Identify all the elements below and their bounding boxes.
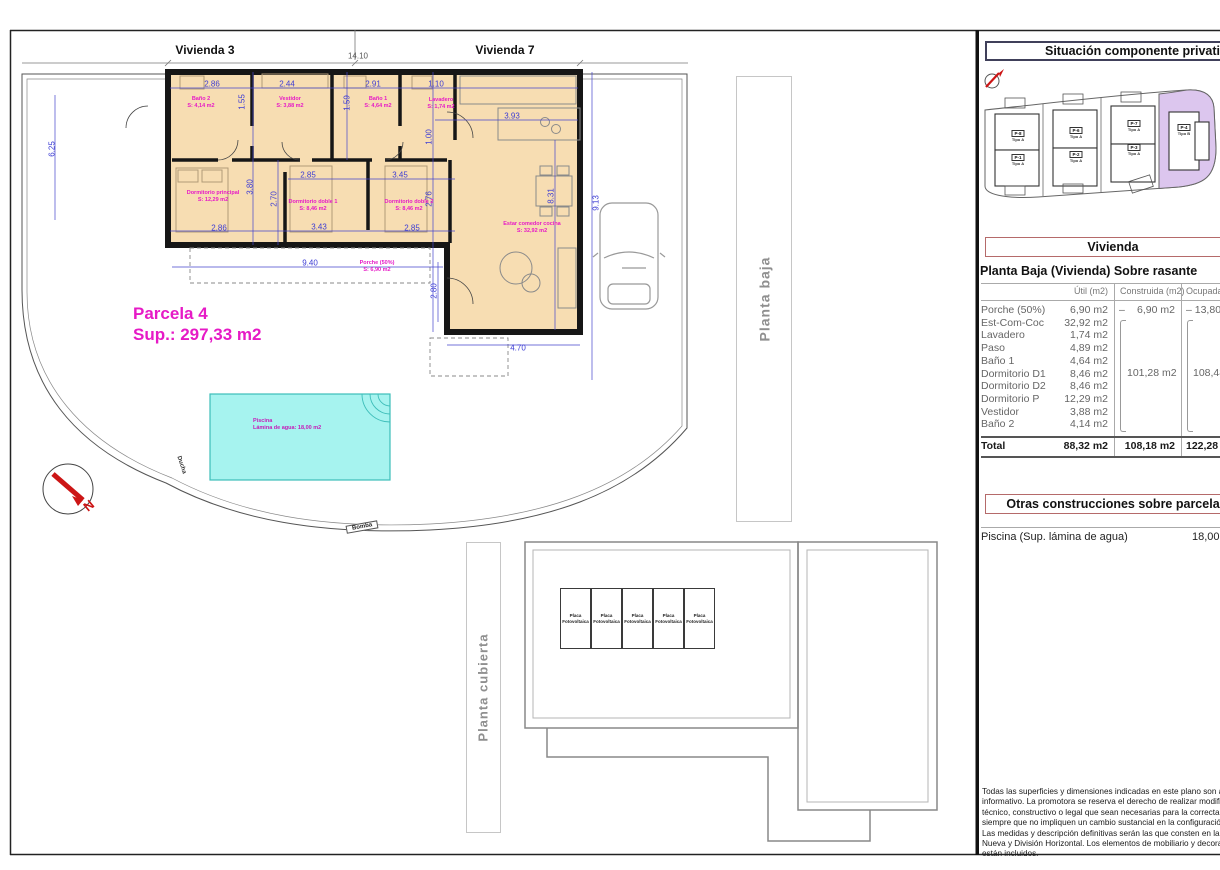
dim-label: 1.00 bbox=[425, 129, 434, 145]
col-ocupada: Ocupada bbox=[1186, 286, 1220, 296]
row-util: 4,14 m2 bbox=[1028, 418, 1108, 430]
dim-label: 1.59 bbox=[343, 95, 352, 111]
room-label: Baño 1S: 4,64 m2 bbox=[364, 96, 391, 110]
row-label: Baño 1 bbox=[981, 355, 1014, 367]
dim-label: 14.10 bbox=[348, 52, 368, 61]
otras-header: Otras construcciones sobre parcela bbox=[985, 494, 1220, 514]
row-util: 4,64 m2 bbox=[1028, 355, 1108, 367]
vivienda-header: Vivienda bbox=[985, 237, 1220, 257]
room-label: Porche (50%)S: 6,90 m2 bbox=[360, 260, 395, 274]
vivienda-3-title: Vivienda 3 bbox=[175, 43, 234, 57]
panel-divider bbox=[976, 30, 980, 855]
dim-label: 2.85 bbox=[404, 224, 420, 233]
pool-label: PiscinaLámina de agua: 18,00 m2 bbox=[253, 418, 321, 432]
dim-label: 2.85 bbox=[300, 171, 316, 180]
solar-panel: PlacaFotovoltaica bbox=[653, 588, 684, 649]
piscina-row-label: Piscina (Sup. lámina de agua) bbox=[981, 531, 1128, 543]
dim-label: 2.80 bbox=[430, 283, 439, 299]
row-label: Baño 2 bbox=[981, 418, 1014, 430]
dim-label: 3.80 bbox=[246, 179, 255, 195]
roof-plan bbox=[525, 542, 937, 841]
dim-label: 3.43 bbox=[311, 223, 327, 232]
disclaimer: Todas las superficies y dimensiones indi… bbox=[982, 787, 1220, 860]
room-label: Dormitorio doble 1S: 8,46 m2 bbox=[289, 199, 338, 213]
room-label: Dormitorio principalS: 12,29 m2 bbox=[187, 190, 240, 204]
room-label: Estar comedor cocinaS: 32,92 m2 bbox=[503, 221, 560, 235]
plot-label-highlighted: P-4Tipo B bbox=[1177, 124, 1190, 136]
group-ocupada: 108,48 bbox=[1193, 367, 1220, 379]
row-util: 8,46 m2 bbox=[1028, 380, 1108, 392]
room-label: LavaderoS: 1,74 m2 bbox=[427, 97, 454, 111]
row-util: 12,29 m2 bbox=[1028, 393, 1108, 405]
solar-panel-array: PlacaFotovoltaica PlacaFotovoltaica Plac… bbox=[560, 588, 715, 649]
vivienda-7-title: Vivienda 7 bbox=[475, 43, 534, 57]
row-label: Paso bbox=[981, 342, 1005, 354]
dim-label: 2.70 bbox=[270, 191, 279, 207]
room-label: Baño 2S: 4,14 m2 bbox=[187, 96, 214, 110]
row-util: 3,88 m2 bbox=[1028, 406, 1108, 418]
room-label: VestidorS: 3,88 m2 bbox=[276, 96, 303, 110]
plot-label: P-1Tipo A bbox=[1011, 154, 1024, 166]
dim-label: 3.45 bbox=[392, 171, 408, 180]
dim-label: 1.55 bbox=[238, 94, 247, 110]
car bbox=[593, 203, 665, 309]
porche-construida: 6,90 m2 bbox=[1127, 304, 1175, 316]
dim-label: 3.93 bbox=[504, 112, 520, 121]
solar-panel: PlacaFotovoltaica bbox=[684, 588, 715, 649]
row-util: 32,92 m2 bbox=[1028, 317, 1108, 329]
plot-label: P-7Tipo A bbox=[1127, 120, 1140, 132]
solar-panel: PlacaFotovoltaica bbox=[622, 588, 653, 649]
top-dim-line bbox=[22, 60, 688, 66]
pool bbox=[210, 394, 390, 480]
dim-label: 4.70 bbox=[510, 344, 526, 353]
porche-ocupada: – 13,80 bbox=[1186, 304, 1220, 316]
piscina-row-value: 18,00 bbox=[1192, 531, 1220, 543]
total-construida: 108,18 m2 bbox=[1117, 440, 1175, 452]
dim-label: 9.40 bbox=[302, 259, 318, 268]
porche-construida-dash: – bbox=[1119, 304, 1125, 316]
dim-label: 9.13 bbox=[592, 195, 601, 211]
solar-panel: PlacaFotovoltaica bbox=[591, 588, 622, 649]
plot-label: P-8Tipo A bbox=[1011, 130, 1024, 142]
row-util: 6,90 m2 bbox=[1028, 304, 1108, 316]
plot-label: P-2Tipo A bbox=[1069, 151, 1082, 163]
dim-label: 8.31 bbox=[547, 188, 556, 204]
plot-label: P-6Tipo A bbox=[1069, 127, 1082, 139]
group-construida: 101,28 m2 bbox=[1127, 367, 1175, 379]
plot-label: P-3Tipo A bbox=[1127, 144, 1140, 156]
row-label: Lavadero bbox=[981, 329, 1025, 341]
dim-label: 2.91 bbox=[365, 80, 381, 89]
col-util: Útil (m2) bbox=[1021, 286, 1108, 296]
situacion-header: Situación componente privativo bbox=[985, 41, 1220, 61]
row-util: 8,46 m2 bbox=[1028, 368, 1108, 380]
planta-baja-strip: Planta baja bbox=[736, 76, 792, 522]
construida-bracket bbox=[1120, 320, 1126, 432]
room-label: Dormitorio doble 2S: 8,46 m2 bbox=[385, 199, 434, 213]
dim-label: 6.25 bbox=[48, 141, 57, 157]
areas-table: Útil (m2) Construida (m2) Ocupada Porche… bbox=[981, 283, 1220, 463]
dim-label: 2.86 bbox=[211, 224, 227, 233]
site-plan bbox=[985, 90, 1216, 198]
col-construida: Construida (m2) bbox=[1120, 286, 1185, 296]
pen-icon bbox=[985, 69, 1004, 88]
row-util: 1,74 m2 bbox=[1028, 329, 1108, 341]
total-label: Total bbox=[981, 440, 1005, 452]
parcela-label: Parcela 4Sup.: 297,33 m2 bbox=[133, 303, 262, 346]
total-ocupada: 122,28 bbox=[1186, 440, 1218, 452]
row-label: Vestidor bbox=[981, 406, 1019, 418]
dim-label: 1.10 bbox=[428, 80, 444, 89]
dim-label: 2.86 bbox=[204, 80, 220, 89]
planta-cubierta-strip: Planta cubierta bbox=[466, 542, 501, 833]
solar-panel: PlacaFotovoltaica bbox=[560, 588, 591, 649]
row-util: 4,89 m2 bbox=[1028, 342, 1108, 354]
table-title: Planta Baja (Vivienda) Sobre rasante bbox=[980, 264, 1197, 278]
dim-label: 2.44 bbox=[279, 80, 295, 89]
plan-sheet: { "plan": { "vivienda3": "Vivienda 3", "… bbox=[0, 0, 1220, 870]
total-util: 88,32 m2 bbox=[1028, 440, 1108, 452]
